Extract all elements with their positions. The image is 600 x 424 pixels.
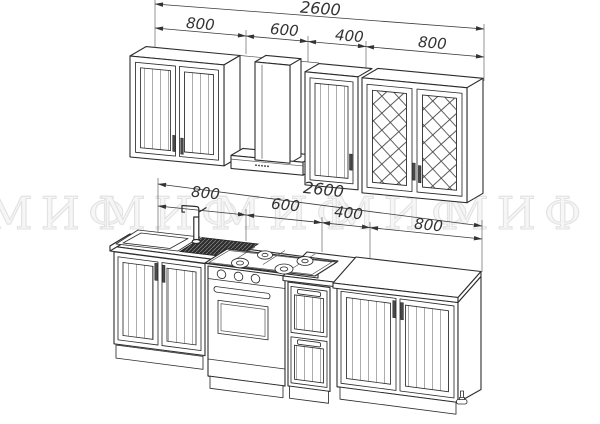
- door-handle: [173, 135, 176, 151]
- burner: [232, 258, 249, 268]
- dim-upper-segment-label: 800: [185, 14, 215, 34]
- cabinet-side-face: [467, 78, 483, 202]
- dim-upper-total-label: 2600: [299, 0, 341, 20]
- burner: [275, 264, 293, 274]
- burner: [258, 251, 273, 259]
- dim-upper-segment-label: 600: [269, 20, 299, 40]
- lattice-glass-panel: [423, 95, 457, 190]
- oven: [208, 266, 285, 398]
- sink-base-cabinet: [114, 252, 205, 370]
- dim-lower-segment-label: 800: [413, 215, 443, 236]
- door-handle: [413, 163, 416, 180]
- faucet-base: [192, 240, 200, 244]
- cabinet-side-face: [224, 56, 240, 166]
- door-handle: [162, 265, 165, 282]
- dim-lower-segment-label: 400: [333, 203, 363, 224]
- door-handle: [418, 166, 421, 183]
- door-handle: [393, 301, 396, 318]
- wall-cabinet-800-left: [130, 56, 224, 166]
- base-cabinet-800-right: [337, 287, 458, 415]
- chimney-duct: [255, 62, 290, 163]
- dim-upper-segment-label: 800: [417, 33, 447, 53]
- wall-cabinet-400: [305, 72, 358, 190]
- door-handle: [401, 303, 404, 320]
- burner: [297, 257, 313, 266]
- dim-lower-segment-label: 600: [270, 195, 300, 216]
- kitchen-technical-drawing-page: МИФ МИФ МИФ МИФ МИФ: [0, 0, 600, 424]
- door-handle: [181, 138, 184, 154]
- door-handle: [155, 263, 158, 280]
- kitchen-drawing: МИФ МИФ МИФ МИФ МИФ: [0, 0, 600, 424]
- lattice-glass-panel: [373, 90, 407, 185]
- door-handle: [350, 154, 353, 170]
- dim-upper-segment-label: 400: [334, 26, 364, 46]
- drawer-unit-400: [288, 282, 330, 403]
- wall-cabinet-800-lattice: [362, 78, 467, 203]
- chimney-side-face: [290, 59, 301, 164]
- faucet-body: [194, 217, 199, 241]
- dim-lower-segment-label: 800: [190, 183, 220, 204]
